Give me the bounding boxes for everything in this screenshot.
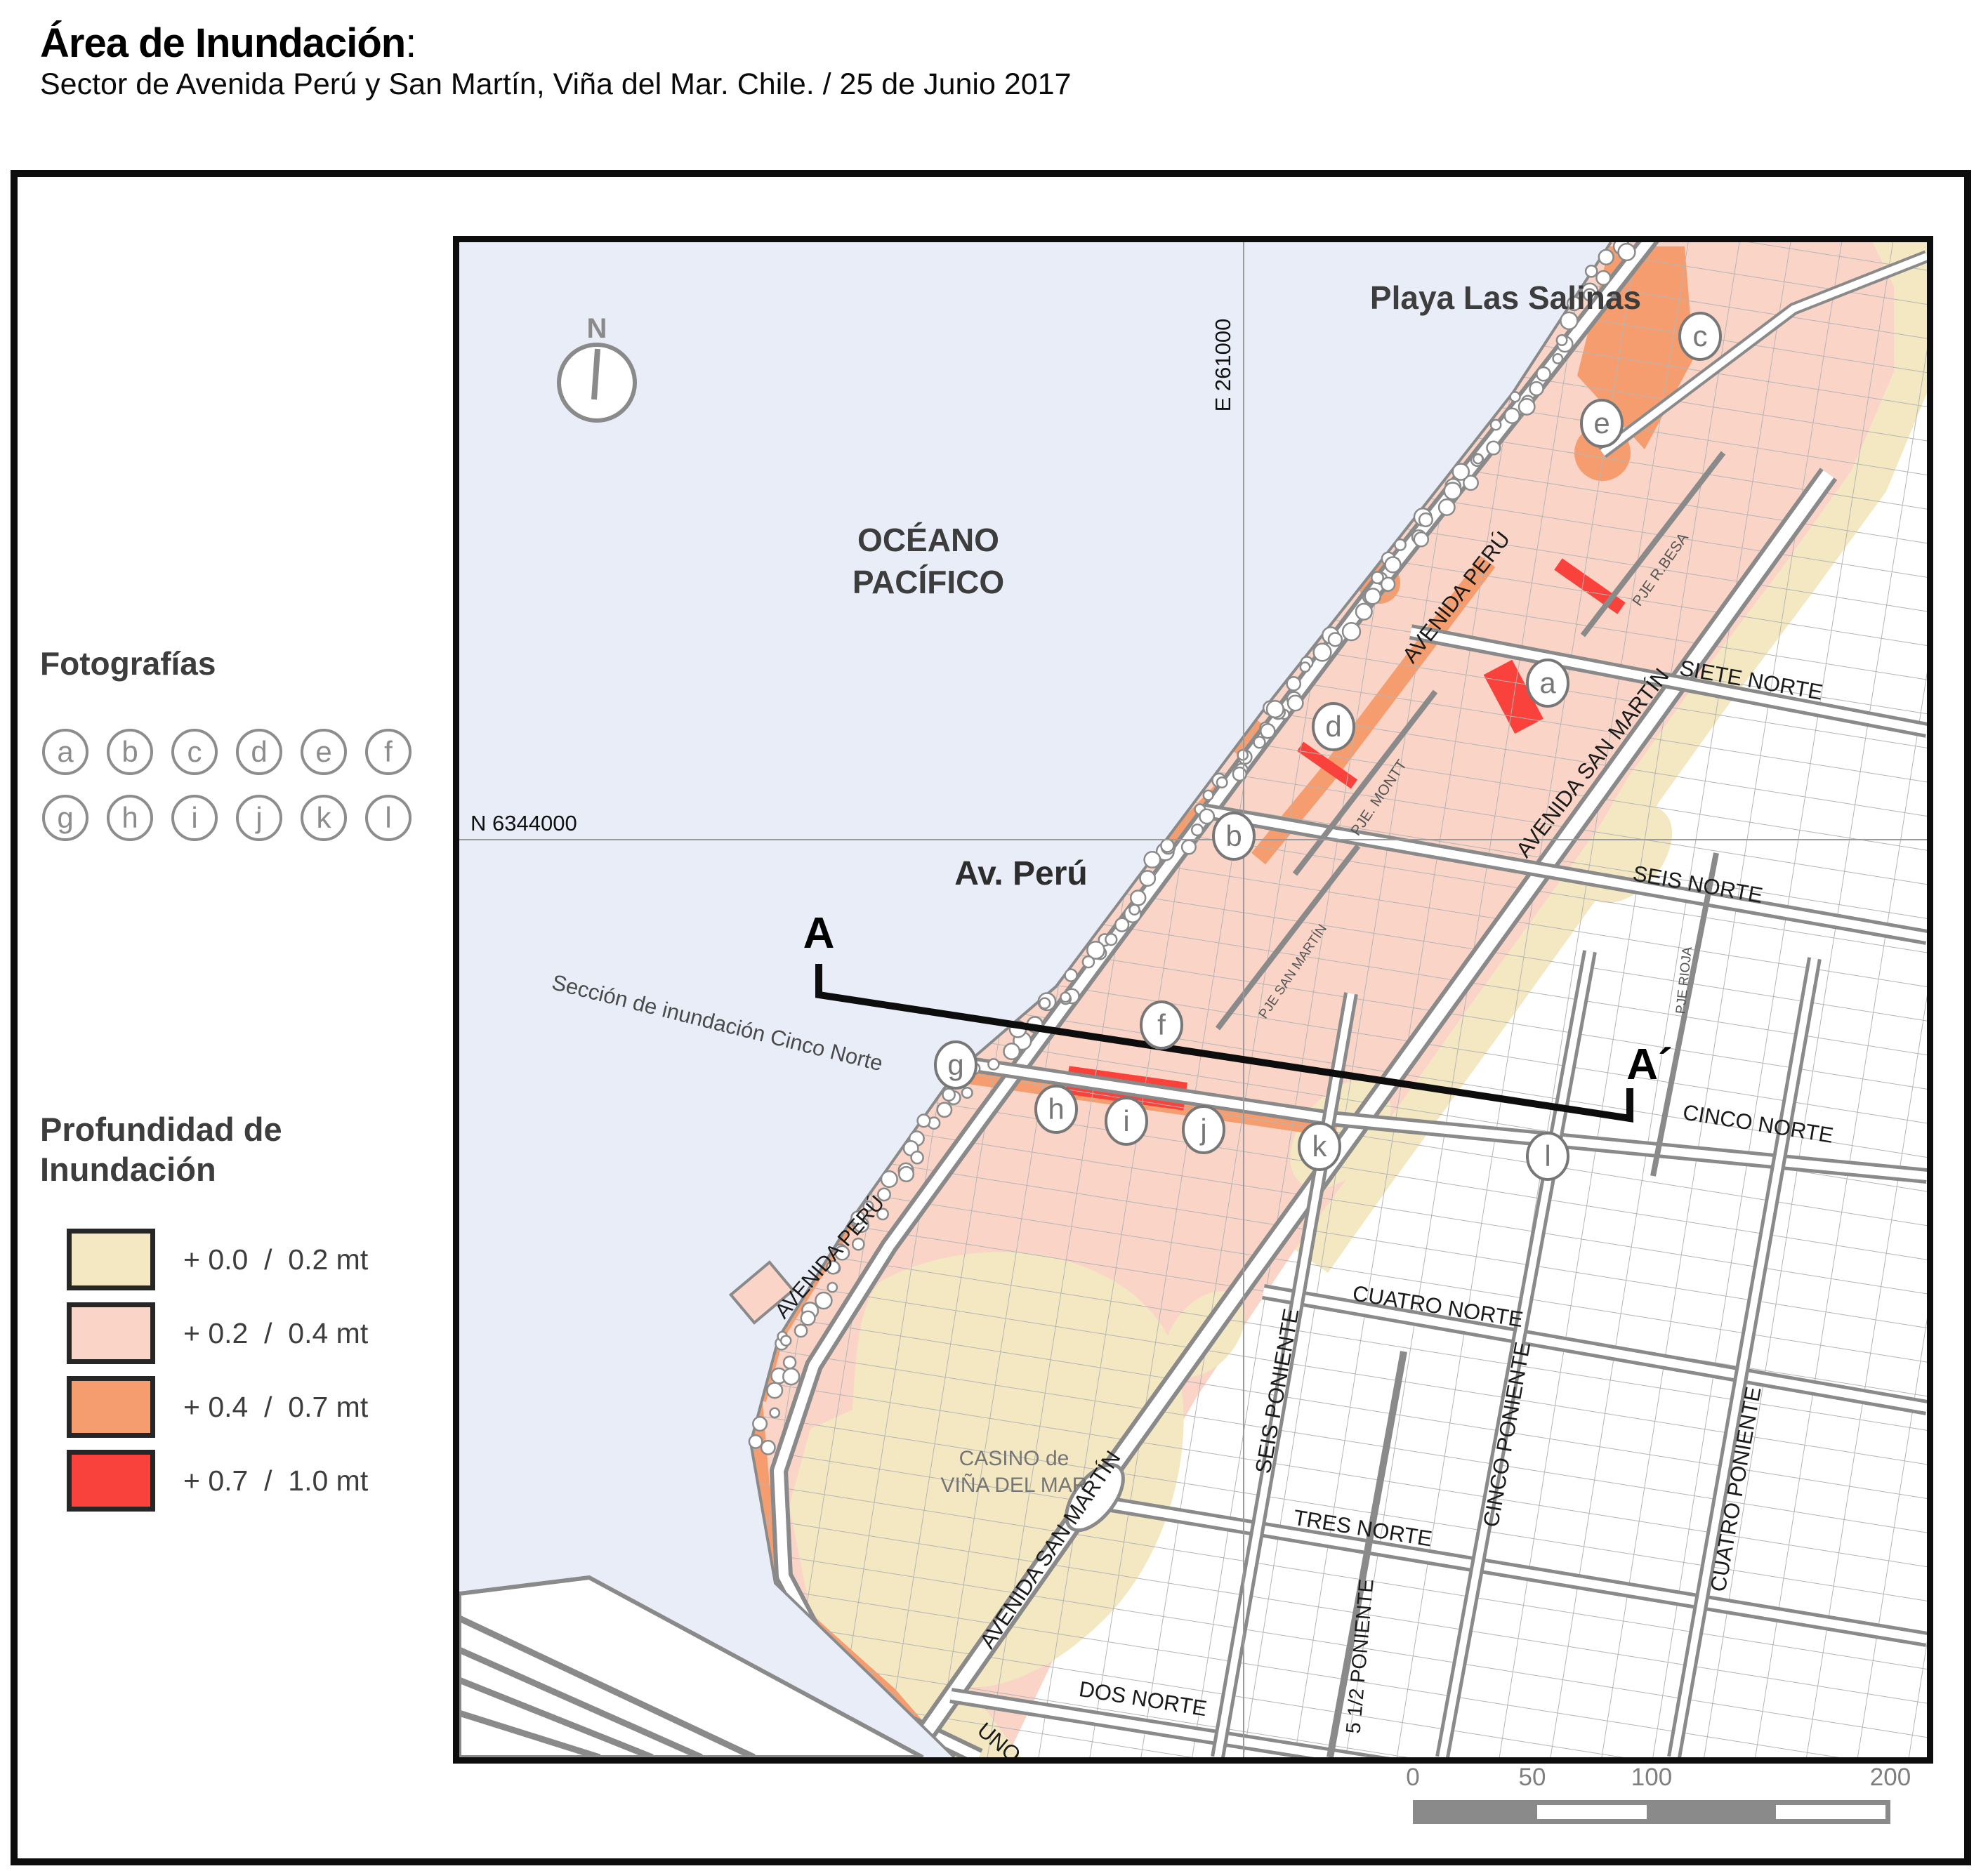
- map-panel: abcdefghijkl Playa Las SalinasOCÉANOPACÍ…: [453, 236, 1933, 1764]
- scale-tick-0: 0: [1406, 1764, 1419, 1792]
- section-label-a-prime: A´: [1626, 1040, 1672, 1089]
- tree-icon: [1530, 382, 1543, 395]
- tree-icon: [1083, 956, 1094, 967]
- tree-icon: [1487, 442, 1501, 455]
- scale-tick-200: 200: [1870, 1764, 1911, 1792]
- tree-icon: [1130, 905, 1140, 915]
- tree-icon: [1039, 998, 1050, 1009]
- tree-icon: [1004, 1043, 1020, 1059]
- svg-text:g: g: [947, 1048, 963, 1081]
- tree-icon: [784, 1356, 796, 1368]
- label-pacifico: PACÍFICO: [853, 564, 1004, 600]
- tree-icon: [770, 1408, 779, 1417]
- tree-icon: [1217, 777, 1227, 787]
- photo-marker-h: h: [1036, 1086, 1077, 1132]
- depth-legend-rows: + 0.0 / 0.2 mt+ 0.2 / 0.4 mt+ 0.4 / 0.7 …: [67, 1229, 368, 1523]
- photo-marker-c: c: [1680, 313, 1720, 359]
- depth-label-0: + 0.0 / 0.2 mt: [183, 1243, 368, 1276]
- tree-icon: [761, 1441, 775, 1454]
- photo-legend-item-d: d: [236, 729, 282, 775]
- label-av-peru-big: Av. Perú: [954, 855, 1087, 892]
- photo-legend-item-f: f: [365, 729, 412, 775]
- tree-icon: [1519, 399, 1534, 414]
- svg-text:l: l: [1544, 1139, 1551, 1172]
- tree-icon: [781, 1336, 791, 1346]
- scale-segment: [1771, 1800, 1890, 1824]
- gridline-label-north: N 6344000: [470, 811, 577, 835]
- scale-tick-100: 100: [1631, 1764, 1672, 1792]
- svg-text:j: j: [1199, 1113, 1206, 1146]
- compass-icon: [559, 345, 635, 421]
- depth-swatch-0: [67, 1229, 155, 1290]
- depth-legend-row-3: + 0.7 / 1.0 mt: [67, 1450, 368, 1512]
- depth-legend-row-0: + 0.0 / 0.2 mt: [67, 1229, 368, 1290]
- photo-marker-e: e: [1581, 400, 1622, 447]
- depth-legend-title-line2: Inundación: [40, 1149, 282, 1189]
- photo-marker-g: g: [935, 1042, 976, 1088]
- depth-label-2: + 0.4 / 0.7 mt: [183, 1391, 368, 1424]
- photo-legend-row: abcdef: [42, 729, 435, 775]
- page-subtitle: Sector de Avenida Perú y San Martín, Viñ…: [40, 67, 1072, 102]
- tree-icon: [1599, 250, 1614, 265]
- tree-icon: [1365, 588, 1381, 604]
- photo-marker-i: i: [1106, 1098, 1147, 1144]
- photo-marker-d: d: [1313, 703, 1354, 750]
- tree-icon: [1314, 644, 1331, 661]
- tree-icon: [1453, 464, 1469, 480]
- photo-legend-row: ghijkl: [42, 795, 435, 841]
- tree-icon: [1329, 633, 1342, 647]
- tree-icon: [1192, 824, 1203, 835]
- tree-icon: [1586, 265, 1597, 277]
- label-casino-1: CASINO de: [959, 1447, 1069, 1470]
- page-title: Área de Inundación:: [40, 20, 416, 67]
- tree-icon: [1510, 392, 1520, 402]
- tree-icon: [911, 1151, 923, 1163]
- scale-bar-segments: [1413, 1800, 1890, 1824]
- photo-legend-item-g: g: [42, 795, 88, 841]
- scale-bar: 050100200: [1413, 1764, 1890, 1831]
- tree-icon: [1414, 532, 1428, 546]
- tree-icon: [1444, 483, 1461, 500]
- tree-icon: [943, 1089, 955, 1101]
- label-playa-las-salinas: Playa Las Salinas: [1370, 279, 1641, 316]
- svg-text:i: i: [1123, 1104, 1129, 1137]
- photo-legend-title: Fotografías: [40, 644, 216, 682]
- scale-tick-50: 50: [1519, 1764, 1546, 1792]
- tree-icon: [1199, 809, 1213, 824]
- photo-legend-grid: abcdefghijkl: [42, 729, 435, 861]
- tree-icon: [828, 1283, 837, 1292]
- svg-text:h: h: [1048, 1092, 1064, 1125]
- tree-icon: [1301, 663, 1310, 672]
- scale-segment: [1532, 1800, 1652, 1824]
- tree-icon: [1238, 750, 1248, 760]
- tree-icon: [988, 1059, 999, 1069]
- tree-icon: [801, 1311, 815, 1325]
- photo-marker-j: j: [1183, 1106, 1224, 1153]
- tree-icon: [1131, 890, 1145, 905]
- tree-icon: [962, 1087, 973, 1098]
- tree-icon: [1557, 335, 1567, 345]
- tree-icon: [937, 1103, 952, 1117]
- depth-swatch-3: [67, 1450, 155, 1512]
- tree-icon: [1115, 918, 1128, 932]
- scale-segment: [1413, 1800, 1532, 1824]
- label-casino-2: VIÑA DEL MAR: [941, 1473, 1088, 1497]
- depth-legend-title: Profundidad de Inundación: [40, 1109, 282, 1190]
- tree-icon: [1619, 244, 1635, 260]
- photo-legend-item-k: k: [301, 795, 347, 841]
- tree-icon: [1254, 736, 1265, 748]
- tree-icon: [1065, 970, 1077, 981]
- svg-text:b: b: [1225, 819, 1242, 852]
- tree-icon: [1419, 513, 1433, 527]
- svg-text:d: d: [1325, 710, 1341, 743]
- depth-swatch-2: [67, 1376, 155, 1438]
- tree-icon: [1288, 696, 1303, 710]
- tree-icon: [1395, 539, 1405, 550]
- tree-icon: [815, 1292, 831, 1309]
- depth-label-3: + 0.7 / 1.0 mt: [183, 1465, 368, 1498]
- tree-icon: [1356, 604, 1372, 620]
- flood-map: abcdefghijkl Playa Las SalinasOCÉANOPACÍ…: [459, 242, 1927, 1757]
- tree-icon: [1371, 572, 1383, 583]
- tree-icon: [1204, 791, 1213, 800]
- photo-legend-item-l: l: [365, 795, 412, 841]
- photo-legend-item-e: e: [301, 729, 347, 775]
- tree-icon: [1061, 993, 1070, 1002]
- tree-icon: [899, 1167, 914, 1182]
- photo-legend-item-i: i: [171, 795, 218, 841]
- svg-text:a: a: [1539, 666, 1556, 699]
- depth-legend-row-1: + 0.2 / 0.4 mt: [67, 1302, 368, 1364]
- tree-icon: [1505, 409, 1520, 423]
- tree-icon: [1267, 701, 1284, 718]
- scale-segment: [1652, 1800, 1771, 1824]
- tree-icon: [1473, 454, 1482, 463]
- tree-icon: [1343, 623, 1360, 640]
- tree-icon: [1182, 840, 1196, 854]
- tree-icon: [1385, 557, 1401, 573]
- tree-icon: [881, 1171, 897, 1187]
- tree-icon: [1140, 871, 1155, 885]
- svg-text:c: c: [1693, 319, 1708, 352]
- photo-marker-l: l: [1527, 1133, 1568, 1179]
- svg-text:k: k: [1312, 1130, 1328, 1163]
- tree-icon: [1287, 677, 1301, 690]
- tree-icon: [1553, 354, 1562, 363]
- tree-icon: [1161, 839, 1173, 852]
- gridline-label-east: E 261000: [1211, 319, 1235, 412]
- photo-marker-b: b: [1213, 813, 1254, 859]
- flood-map-page: { "header": { "title": "Área de Inundaci…: [0, 0, 1988, 1871]
- label-oceano: OCÉANO: [857, 522, 999, 558]
- photo-marker-a: a: [1527, 660, 1568, 706]
- tree-icon: [749, 1435, 762, 1448]
- tree-icon: [753, 1417, 767, 1431]
- photo-legend-item-h: h: [107, 795, 153, 841]
- photo-legend-item-j: j: [236, 795, 282, 841]
- tree-icon: [1260, 724, 1275, 738]
- photo-marker-k: k: [1299, 1123, 1340, 1170]
- depth-label-1: + 0.2 / 0.4 mt: [183, 1317, 368, 1350]
- depth-legend-row-2: + 0.4 / 0.7 mt: [67, 1376, 368, 1438]
- tree-icon: [1145, 852, 1161, 868]
- tree-icon: [918, 1115, 930, 1128]
- title-colon: :: [405, 20, 416, 66]
- photo-marker-f: f: [1141, 1002, 1182, 1048]
- tree-icon: [1439, 499, 1454, 515]
- compass-letter: N: [587, 313, 607, 344]
- tree-icon: [1105, 934, 1117, 945]
- tree-icon: [1491, 420, 1501, 430]
- photo-legend-item-b: b: [107, 729, 153, 775]
- tree-icon: [783, 1368, 799, 1384]
- section-label-a: A: [803, 909, 835, 958]
- tree-icon: [767, 1383, 782, 1399]
- photo-legend-item-c: c: [171, 729, 218, 775]
- depth-legend-title-line1: Profundidad de: [40, 1109, 282, 1149]
- tree-icon: [1536, 367, 1550, 381]
- tree-icon: [795, 1325, 807, 1337]
- depth-swatch-1: [67, 1302, 155, 1364]
- photo-legend-item-a: a: [42, 729, 88, 775]
- svg-text:f: f: [1157, 1008, 1166, 1041]
- svg-text:e: e: [1593, 406, 1610, 439]
